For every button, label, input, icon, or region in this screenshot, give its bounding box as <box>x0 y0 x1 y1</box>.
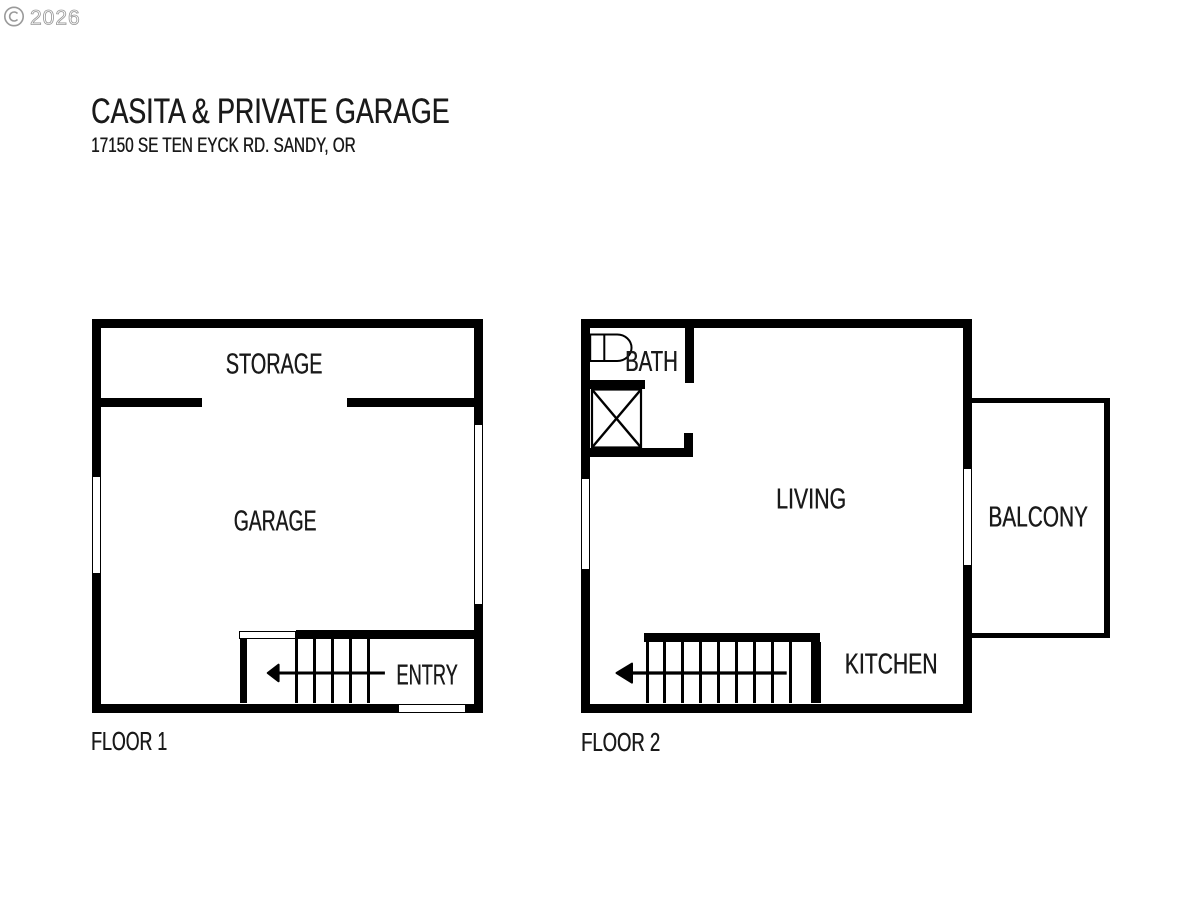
svg-text:2026: 2026 <box>30 7 81 30</box>
